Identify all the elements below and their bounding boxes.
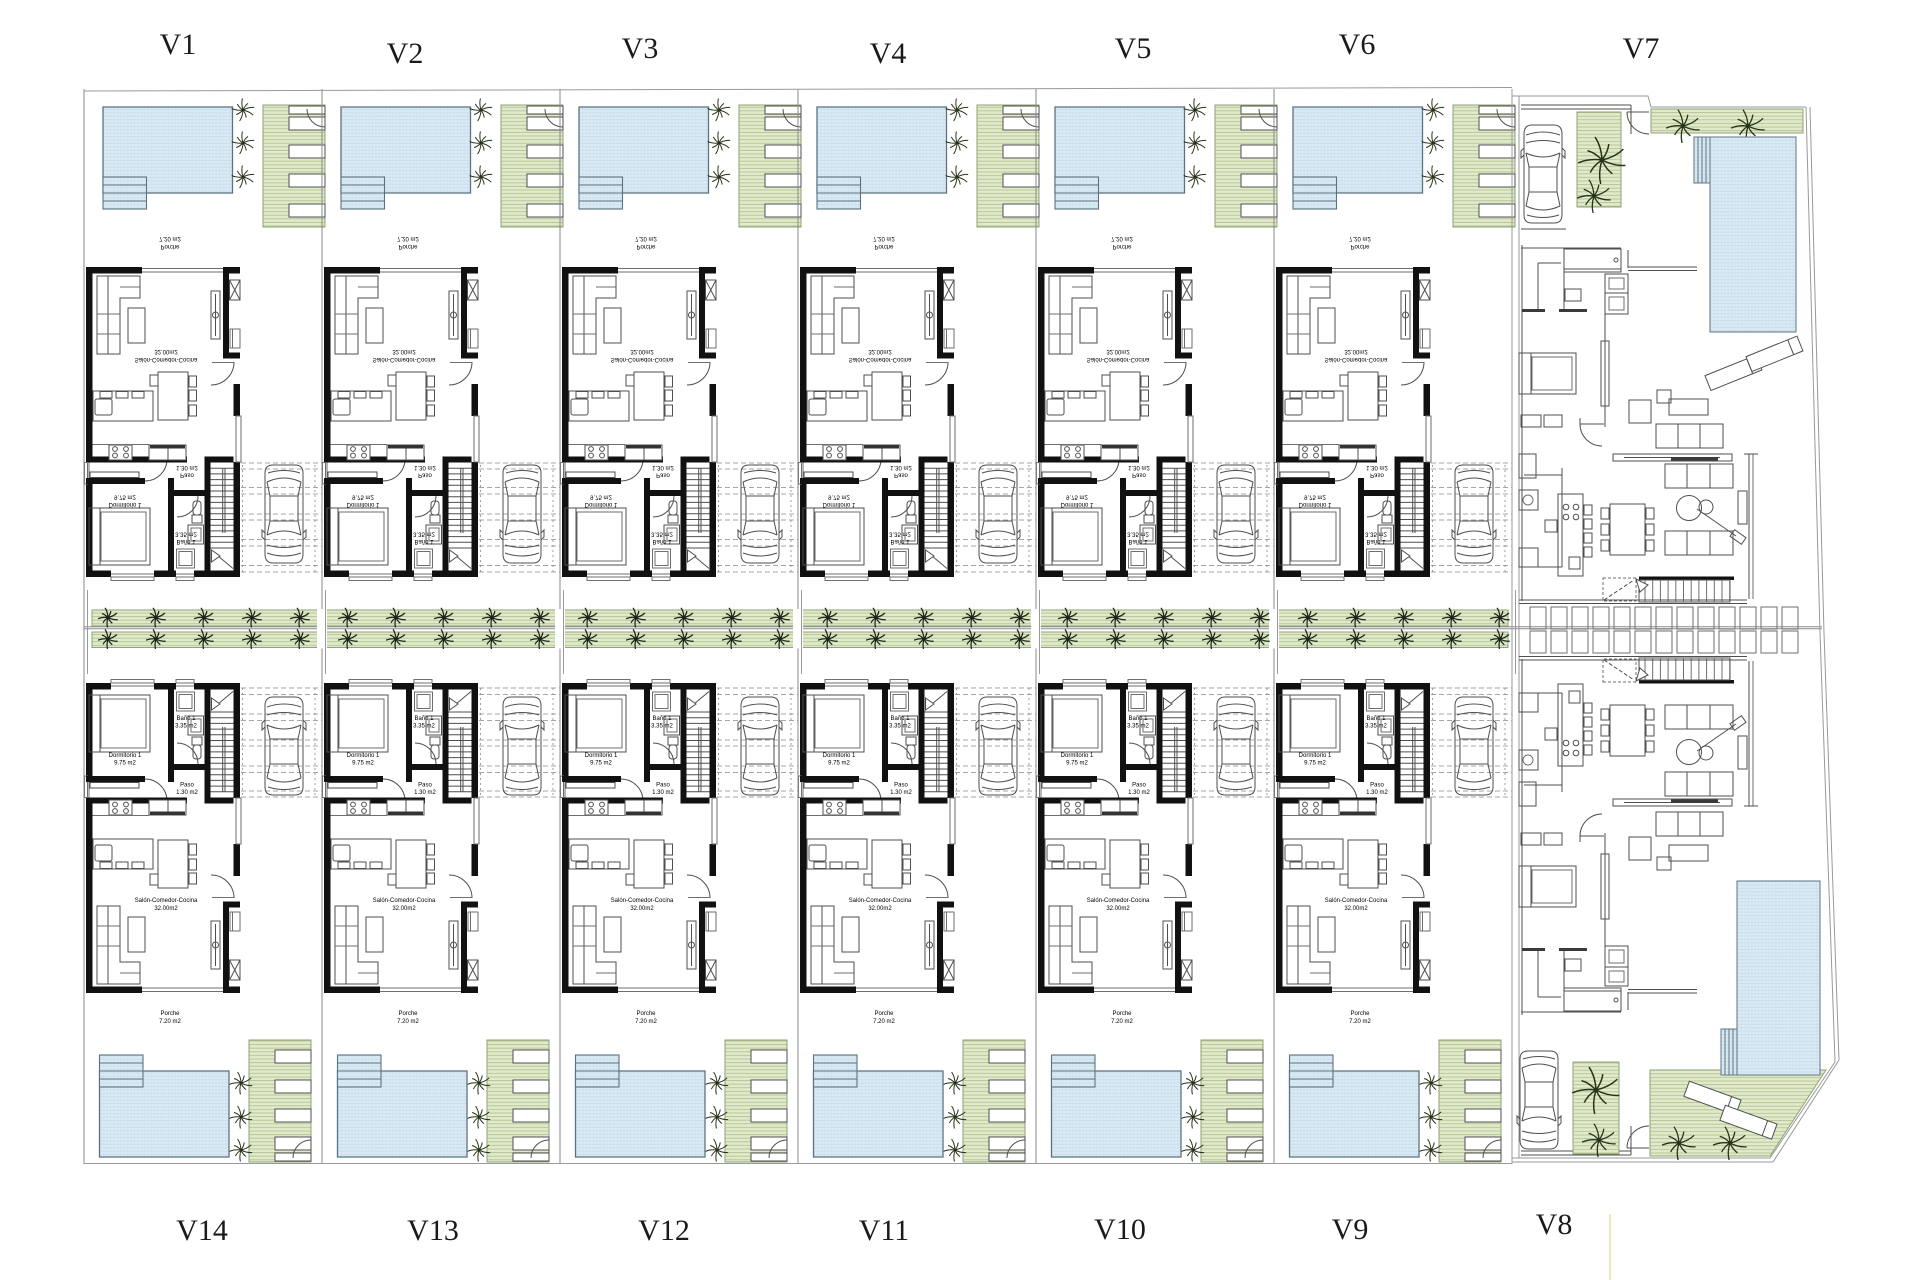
svg-text:V7: V7 xyxy=(1623,32,1660,65)
svg-text:V6: V6 xyxy=(1339,28,1376,61)
svg-text:V13: V13 xyxy=(407,1214,459,1247)
svg-text:V14: V14 xyxy=(176,1214,228,1247)
svg-text:V4: V4 xyxy=(870,37,907,70)
svg-text:V12: V12 xyxy=(638,1214,690,1247)
svg-text:V9: V9 xyxy=(1332,1213,1369,1246)
svg-text:V5: V5 xyxy=(1115,32,1152,65)
svg-text:V11: V11 xyxy=(859,1214,910,1247)
svg-text:V2: V2 xyxy=(387,37,424,70)
svg-text:V8: V8 xyxy=(1536,1208,1573,1241)
svg-text:V10: V10 xyxy=(1094,1213,1146,1246)
svg-text:V1: V1 xyxy=(160,28,197,61)
svg-text:V3: V3 xyxy=(622,32,659,65)
